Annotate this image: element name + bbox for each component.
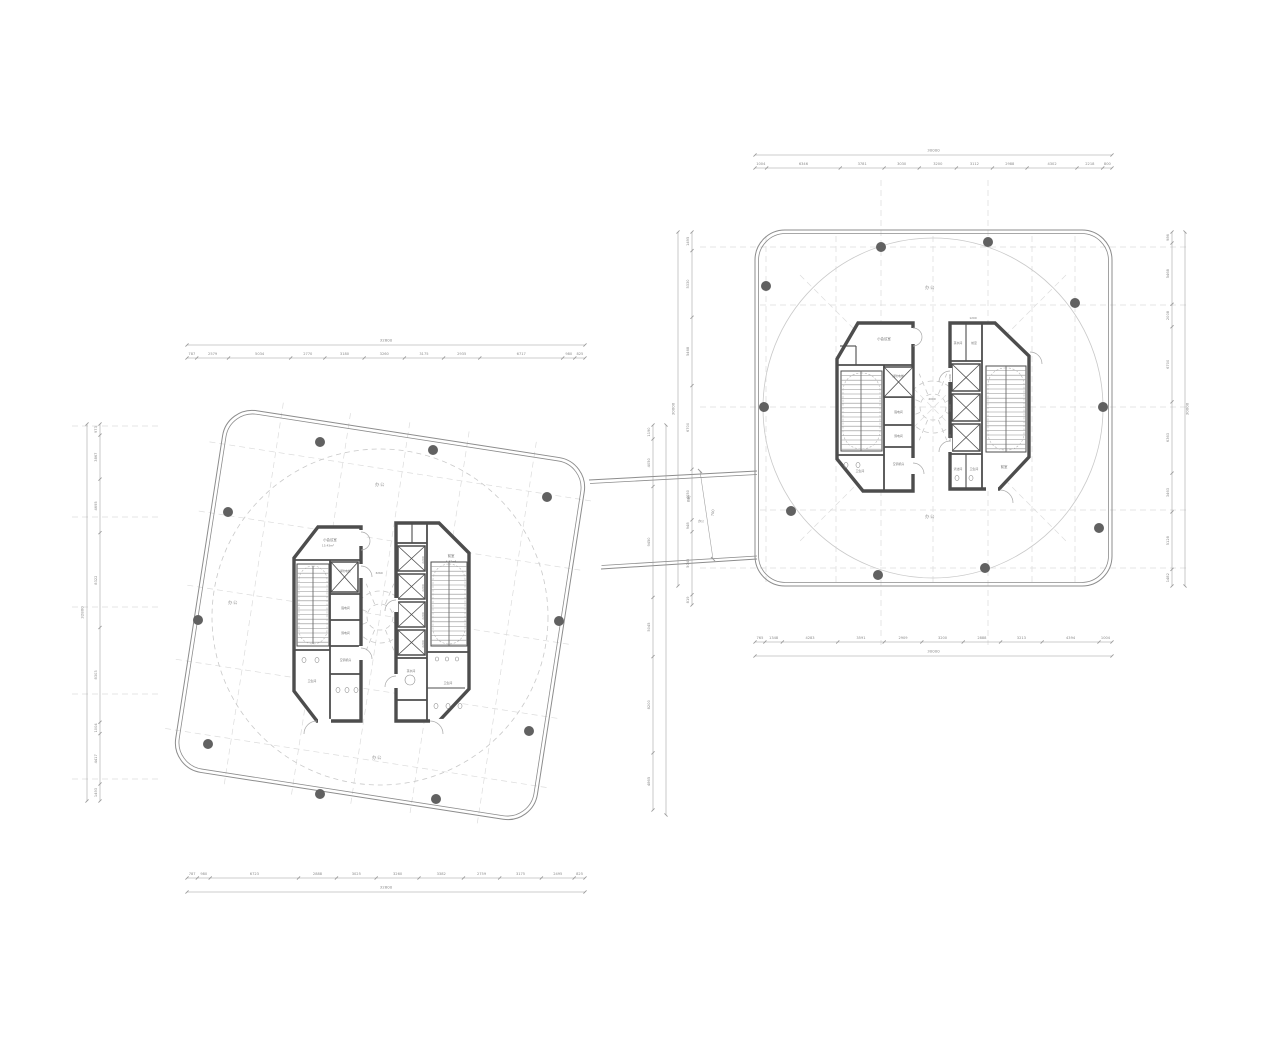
left-core-west-block: 小会议室 15.43m² 消防电梯 强电间 弱电间 空调机房 卫生间: [294, 527, 372, 734]
dim-total-right-top: 30000: [753, 148, 1113, 157]
dim-label: 3213: [1017, 636, 1026, 640]
room-label-pantry: 茶水间: [407, 668, 416, 673]
dim-label: 4283: [805, 636, 814, 640]
office-label: 办公: [372, 754, 382, 761]
dim-label: 2008: [1166, 310, 1170, 320]
dim-total-left-top: 32800: [185, 338, 586, 347]
column-dot: [876, 242, 886, 252]
ornament-ray: [919, 420, 927, 440]
column-dot: [1094, 523, 1104, 533]
dim-label: 2759: [477, 872, 487, 876]
shaft-dim: 2200: [948, 404, 952, 412]
dim-label: 1495: [686, 237, 690, 246]
dim-label: 3200: [933, 162, 943, 166]
dim-label: 4302: [1047, 162, 1056, 166]
dim-label: 2935: [457, 352, 466, 356]
office-label: 办公: [698, 518, 704, 523]
dim-total-label: 32800: [380, 338, 393, 343]
dim-label: 948: [686, 522, 690, 530]
dim-label: 5045: [647, 622, 651, 631]
column-dot: [554, 616, 564, 626]
room-area-vestibule: 6.82m²: [446, 560, 456, 564]
dim-label: 3175: [419, 352, 428, 356]
room-label-toilet: 卫生间: [308, 678, 317, 683]
dim-label: 8200: [647, 699, 651, 709]
dim-label: 825: [576, 352, 583, 356]
dim-label: 800: [1104, 162, 1112, 166]
dim-label: 2888: [977, 636, 987, 640]
dim-total-label: 32800: [80, 606, 85, 619]
column-dot: [315, 789, 325, 799]
dim-label: 4695: [94, 501, 98, 510]
dim-total-right-left: 30000: [671, 230, 680, 587]
dim-label: 980: [200, 872, 208, 876]
room-label-toilet: 卫生间: [970, 466, 979, 471]
link-bridge: 700 898 办公: [589, 469, 757, 569]
right-core-west-block: 小会议室 消防电梯 强电间 弱电间 空调机房 卫生间: [837, 323, 924, 491]
dim-label: 6700: [686, 422, 690, 432]
room-label-meeting: 小会议室: [877, 336, 891, 341]
dim-label: 8303: [94, 670, 98, 679]
dim-label: 980: [565, 352, 573, 356]
floor-layout-circle: [212, 449, 548, 785]
dim-label: 5128: [1166, 535, 1170, 545]
dim-label: 3382: [437, 872, 446, 876]
dim-total-label: 30000: [927, 649, 940, 654]
dim-total-label: 30000: [671, 402, 676, 415]
office-label: 办公: [228, 599, 238, 606]
column-dot: [983, 237, 993, 247]
dim-label: 2770: [303, 352, 313, 356]
dim-label: 1004: [1101, 636, 1111, 640]
bridge-dim-a: 700: [711, 508, 716, 516]
room-label-cleaning: 清洁间: [954, 466, 963, 471]
dim-label: 6723: [250, 872, 259, 876]
dim-label: 2909: [898, 636, 908, 640]
dim-label: 3260: [380, 352, 390, 356]
column-dot: [203, 739, 213, 749]
dim-label: 825: [576, 872, 583, 876]
column-dot: [315, 437, 325, 447]
dim-label: 3112: [970, 162, 979, 166]
stair: [841, 371, 882, 451]
shaft-dim: 2200: [421, 584, 425, 592]
dim-chain-right-top: 100463463781303032003112298843022218800: [753, 162, 1113, 170]
dim-label: 4417: [94, 754, 98, 763]
room-label-vestibule: 前室: [448, 553, 455, 558]
room-label-power: 强电间: [894, 409, 903, 414]
dim-chain-left-left: 9733867469583228303100444171493: [94, 422, 102, 802]
room-label-telecom: 弱电间: [341, 630, 350, 635]
ornament-ray: [938, 374, 946, 394]
column-dot: [524, 726, 534, 736]
dim-total-label: 30000: [1184, 402, 1189, 415]
dim-label: 2579: [208, 352, 218, 356]
left-core-east-block: 前室 6.82m² 茶水间 卫生间 2200 2200 2200 2200: [385, 523, 469, 734]
dim-label: 3260: [393, 872, 403, 876]
shaft-dim: 2200: [948, 434, 952, 442]
dim-label: 1004: [756, 162, 766, 166]
shaft-dim: 2200: [421, 556, 425, 564]
dim-chain-left-top: 7872579503427703180326031752935671798082…: [185, 352, 586, 360]
dim-label: 3591: [856, 636, 865, 640]
ornament-ray: [366, 630, 374, 650]
dim-label: 4050: [647, 457, 651, 467]
floorplan-canvas: 小会议室 15.43m² 消防电梯 强电间 弱电间 空调机房 卫生间: [0, 0, 1280, 1059]
dim-label: 3463: [1166, 488, 1170, 497]
lobby-dim: 2000: [928, 397, 936, 401]
dim-label: 5034: [255, 352, 265, 356]
dimension-layer: 7872579503427703180326031752935671798082…: [80, 148, 1190, 894]
dim-label: 3867: [94, 453, 98, 462]
dim-label: 3025: [352, 872, 361, 876]
lobby-dim: 3260: [375, 571, 383, 575]
shaft-dim: 2200: [421, 612, 425, 620]
dim-label: 3180: [340, 352, 350, 356]
dim-label: 6700: [1166, 359, 1170, 369]
dim-label: 3781: [858, 162, 867, 166]
dim-label: 2495: [553, 872, 562, 876]
dim-label: 2218: [1085, 162, 1095, 166]
dim-chain-left-right: 119040509450504582004865: [647, 423, 655, 811]
dim-label: 4865: [647, 777, 651, 786]
ornament-ray: [385, 584, 393, 604]
dim-label: 2888: [313, 872, 323, 876]
column-dot: [428, 445, 438, 455]
dim-label: 787: [189, 872, 196, 876]
grid-layer: [72, 180, 1190, 838]
dim-label: 3200: [938, 636, 948, 640]
dim-label: 9450: [647, 537, 651, 547]
dim-label: 973: [94, 426, 98, 433]
column-dot: [873, 570, 883, 580]
dim-total-left-left: 32800: [80, 422, 89, 802]
room-label-toilet: 卫生间: [856, 468, 865, 473]
dim-label: 6346: [799, 162, 809, 166]
dim-label: 765: [757, 636, 764, 640]
column-dot: [761, 281, 771, 291]
room-label-fire-elevator: 消防电梯: [892, 373, 904, 378]
dim-label: 5468: [1166, 268, 1170, 278]
room-label-power: 强电间: [341, 605, 350, 610]
column-dot: [1098, 402, 1108, 412]
column-dot: [980, 563, 990, 573]
room-label-fire-elevator: 消防电梯: [339, 568, 351, 573]
dim-label: 6717: [517, 352, 526, 356]
dim-chain-right-left: 149553305468670040509485045819: [686, 230, 694, 606]
dim-label: 787: [188, 352, 195, 356]
dim-label: 1493: [94, 788, 98, 797]
dim-total-label: 30000: [927, 148, 940, 153]
dim-label: 1190: [647, 427, 651, 437]
dim-total-right-bottom: 30000: [753, 649, 1113, 658]
office-label: 办公: [925, 513, 935, 520]
dim-label: 986: [1166, 233, 1170, 241]
dim-label: 3175: [516, 872, 525, 876]
room-label-vestibule: 前室: [1001, 464, 1008, 469]
dim-label: 4394: [1066, 636, 1076, 640]
column-dot: [1070, 298, 1080, 308]
room-label-telecom: 弱电间: [894, 433, 903, 438]
dim-total-right-right: 30000: [1183, 230, 1189, 587]
dim-label: 2988: [1005, 162, 1015, 166]
room-label-pantry: 茶水间: [954, 340, 963, 345]
top-dim: 1200: [969, 316, 977, 320]
column-dot: [193, 615, 203, 625]
dim-label: 5045: [686, 559, 690, 568]
floorplan-sheet: 小会议室 15.43m² 消防电梯 强电间 弱电间 空调机房 卫生间: [0, 0, 1280, 1059]
dim-total-label: 32800: [380, 885, 393, 890]
shaft-dim: 2200: [948, 374, 952, 382]
column-dot: [759, 402, 769, 412]
column-dot: [542, 492, 552, 502]
dim-label: 5468: [686, 346, 690, 356]
shaft-dim: 2200: [421, 640, 425, 648]
dim-total-left-bottom: 32800: [185, 885, 586, 894]
room-label-ac: 空调机房: [340, 657, 352, 662]
room-area-meeting: 15.43m²: [322, 544, 334, 548]
room-label-ac: 空调机房: [893, 461, 905, 466]
dim-label: 1348: [769, 636, 779, 640]
dim-label: 8322: [94, 576, 98, 585]
column-dot: [786, 506, 796, 516]
dim-label: 4050: [686, 489, 690, 499]
column-dot: [223, 507, 233, 517]
dim-chain-left-bottom: 7879806723288830253260338227593175249582…: [185, 872, 586, 880]
room-label-toilet: 卫生间: [444, 680, 453, 685]
right-core-east-block: 茶水间 前室 清洁间 卫生间 前室 1200 2200 2200 2200: [939, 316, 1042, 503]
room-label-meeting: 小会议室: [323, 537, 337, 542]
dim-label: 1482: [1166, 573, 1170, 582]
dim-label: 1004: [94, 723, 98, 733]
dim-chain-right-bottom: 765134842833591290932002888321343941004: [753, 636, 1113, 644]
dim-total-left-right: [664, 423, 667, 816]
office-label: 办公: [375, 481, 385, 488]
column-dot: [431, 794, 441, 804]
dim-label: 5330: [686, 279, 690, 289]
right-tower-plan: 小会议室 消防电梯 强电间 弱电间 空调机房 卫生间: [755, 230, 1112, 586]
dim-chain-right-right: 9865468200867006363346351281482: [1166, 230, 1174, 587]
dim-label: 3030: [897, 162, 907, 166]
room-label-vestibule: 前室: [971, 340, 977, 345]
dim-label: 6363: [1166, 433, 1170, 442]
dim-label: 819: [686, 596, 690, 604]
office-label: 办公: [925, 284, 935, 291]
